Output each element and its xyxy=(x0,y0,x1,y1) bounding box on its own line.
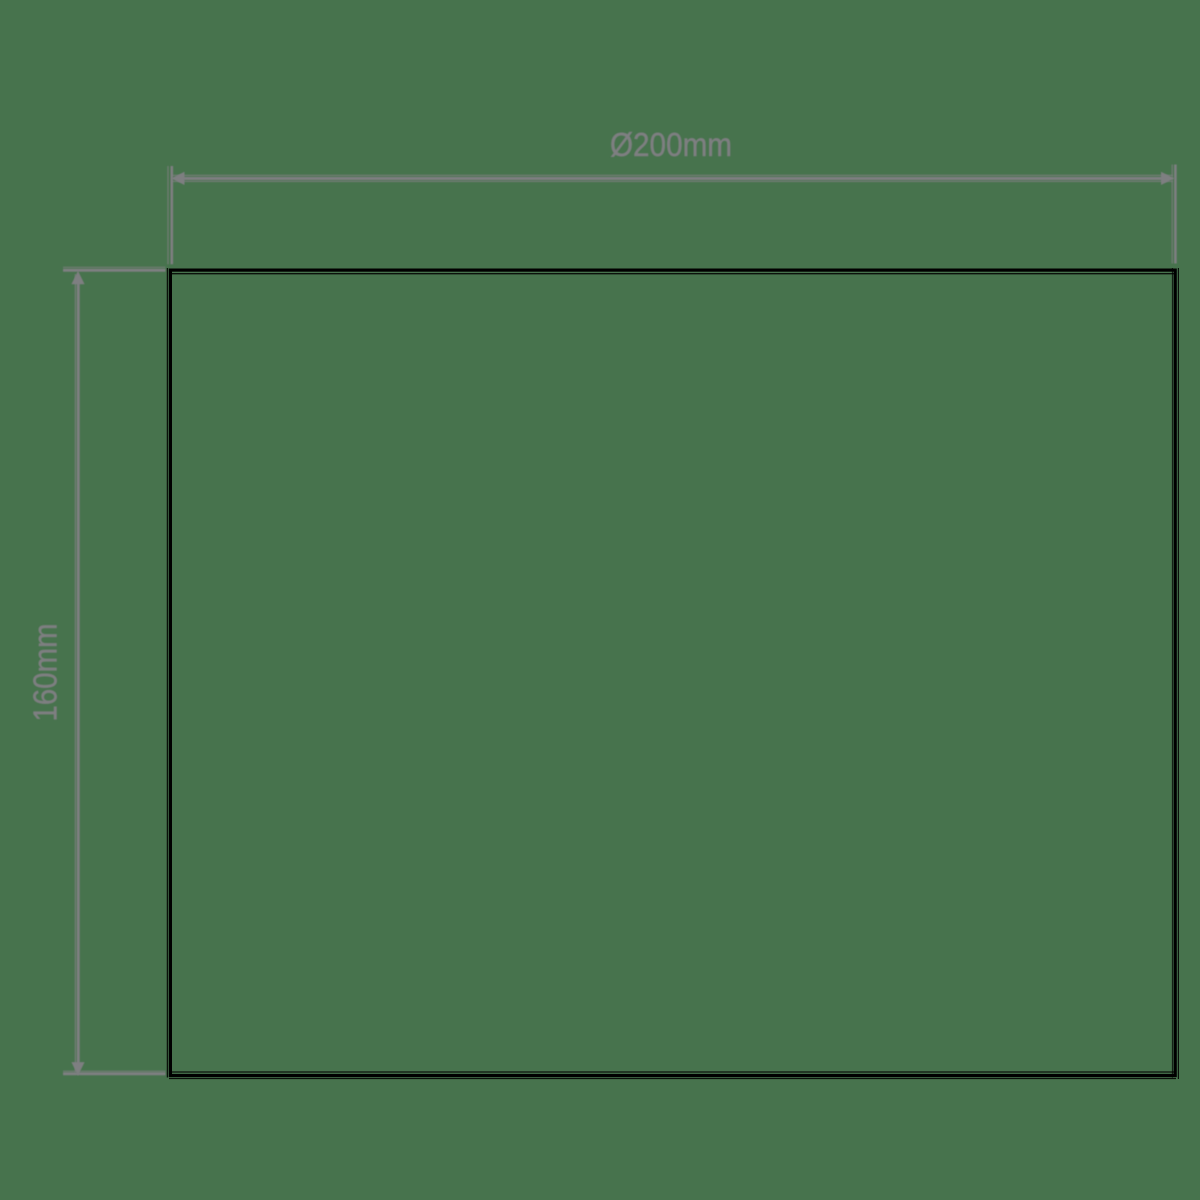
svg-text:Ø200mm: Ø200mm xyxy=(610,127,732,164)
svg-text:160mm: 160mm xyxy=(27,623,64,721)
